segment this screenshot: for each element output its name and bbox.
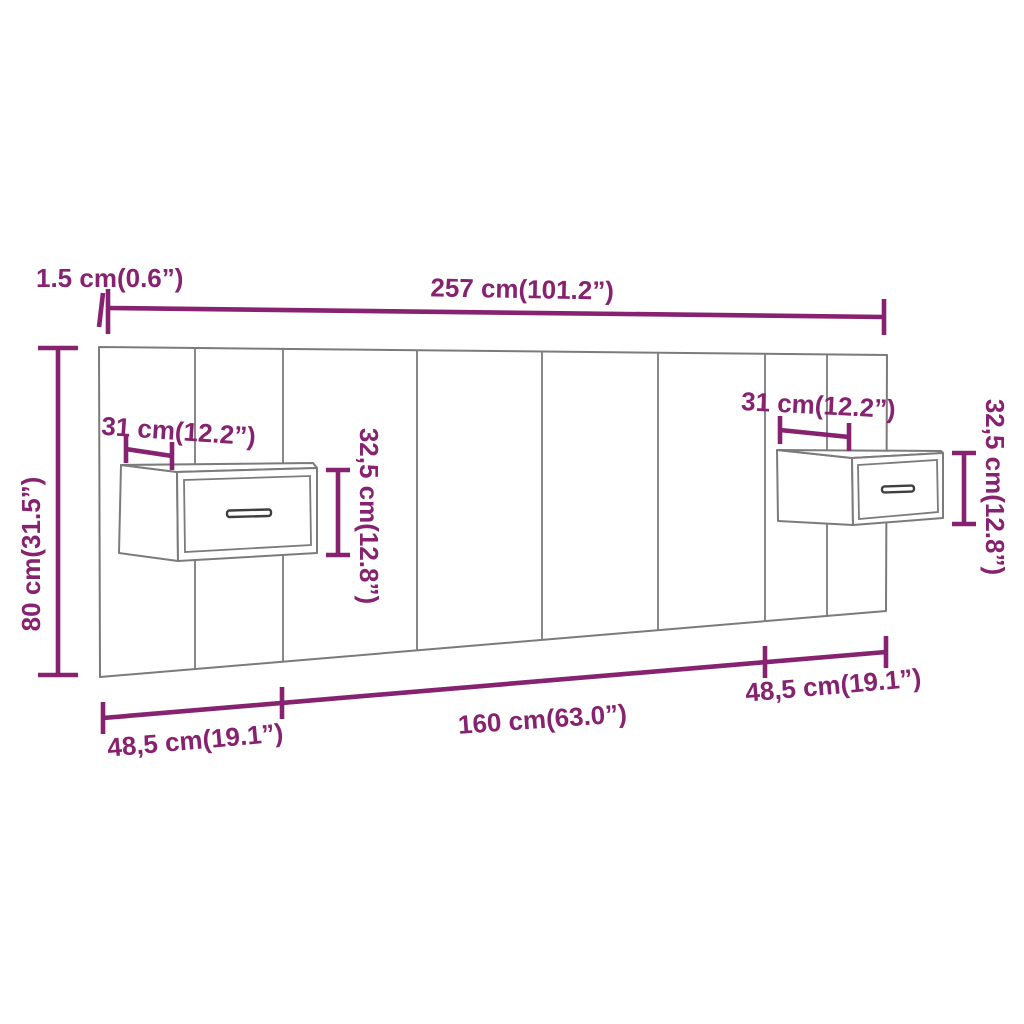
- label-bottom-left-section: 48,5 cm(19.1”): [106, 717, 284, 762]
- label-total-width: 257 cm(101.2”): [430, 272, 614, 305]
- left-cabinet-side-face: [119, 465, 178, 561]
- label-bottom-middle-section: 160 cm(63.0”): [457, 698, 628, 740]
- right-cabinet: [777, 450, 943, 525]
- dim-right-cabinet-height: [952, 453, 976, 524]
- label-left-cabinet-height: 32,5 cm(12.8”): [354, 428, 384, 604]
- left-drawer-handle-icon: [227, 509, 271, 517]
- label-total-height: 80 cm(31.5”): [16, 477, 46, 632]
- dimension-diagram: 1.5 cm(0.6”) 257 cm(101.2”) 80 cm(31.5”)…: [0, 0, 1024, 1024]
- left-cabinet: [119, 463, 317, 561]
- label-bottom-right-section: 48,5 cm(19.1”): [744, 662, 922, 707]
- right-drawer-handle-icon: [882, 485, 914, 492]
- dim-tick: [99, 293, 103, 327]
- label-thickness: 1.5 cm(0.6”): [36, 263, 183, 293]
- label-right-cabinet-height: 32,5 cm(12.8”): [980, 399, 1010, 575]
- right-cabinet-side-face: [777, 450, 853, 525]
